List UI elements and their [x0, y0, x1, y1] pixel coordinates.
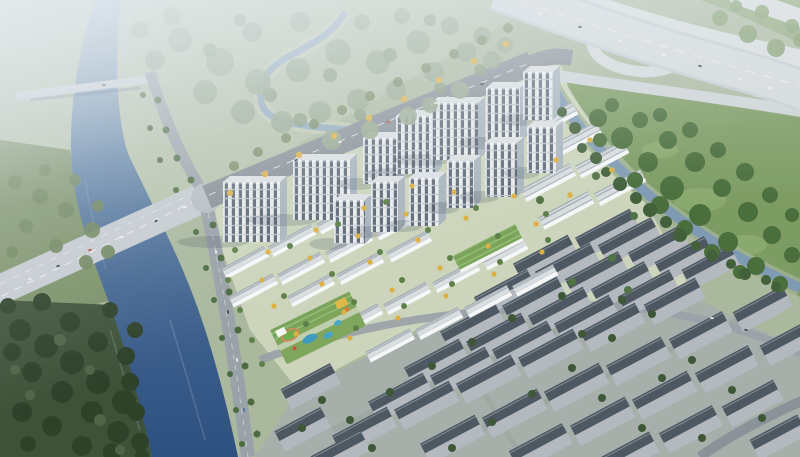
- sky-haze: [0, 0, 800, 457]
- aerial-rendering: [0, 0, 800, 457]
- rendering-canvas: [0, 0, 800, 457]
